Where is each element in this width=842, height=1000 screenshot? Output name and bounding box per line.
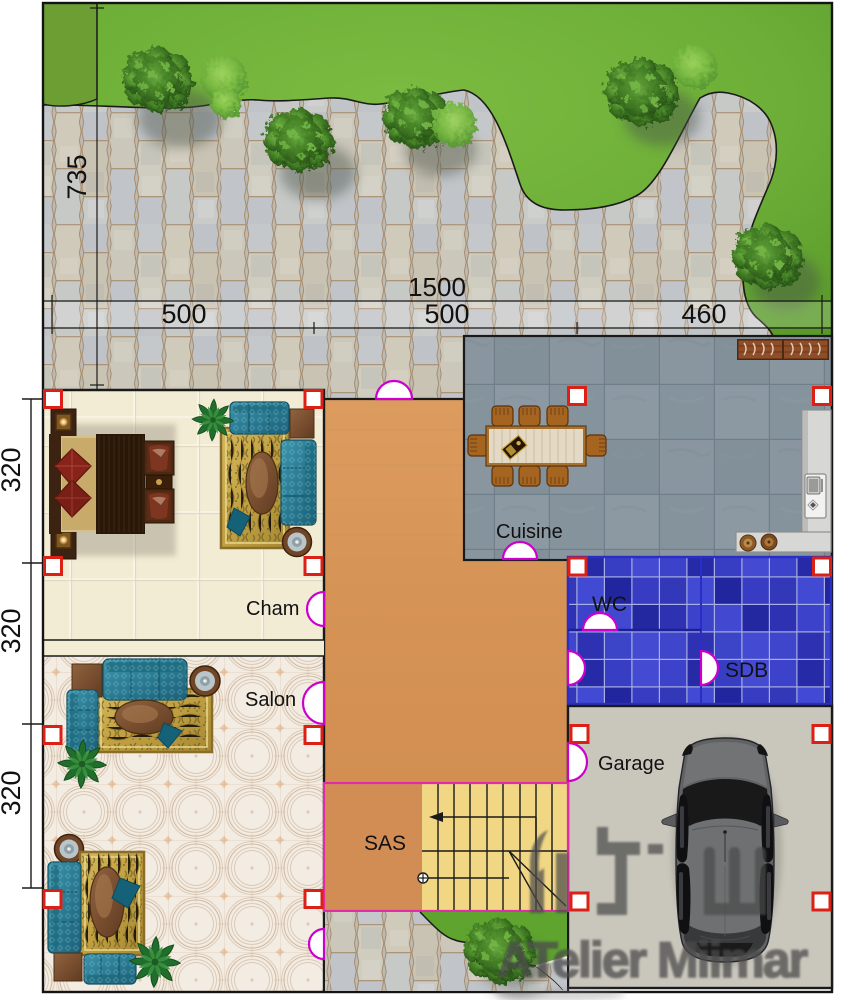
svg-text:500: 500: [161, 299, 206, 329]
svg-text:Garage: Garage: [598, 753, 665, 775]
svg-text:SAS: SAS: [364, 832, 406, 855]
svg-text:320: 320: [0, 770, 26, 815]
svg-text:320: 320: [0, 447, 26, 492]
svg-text:735: 735: [62, 154, 92, 199]
svg-text:500: 500: [424, 299, 469, 329]
svg-text:320: 320: [0, 608, 26, 653]
svg-text:Cuisine: Cuisine: [496, 521, 563, 543]
svg-text:ATelier Miimar: ATelier Miimar: [497, 932, 808, 988]
svg-text:Cham: Cham: [246, 598, 299, 620]
svg-text:WC: WC: [592, 593, 627, 616]
svg-text:Salon: Salon: [245, 689, 296, 711]
svg-text:1500: 1500: [408, 272, 466, 302]
svg-text:SDB: SDB: [725, 659, 768, 682]
svg-text:460: 460: [681, 299, 726, 329]
